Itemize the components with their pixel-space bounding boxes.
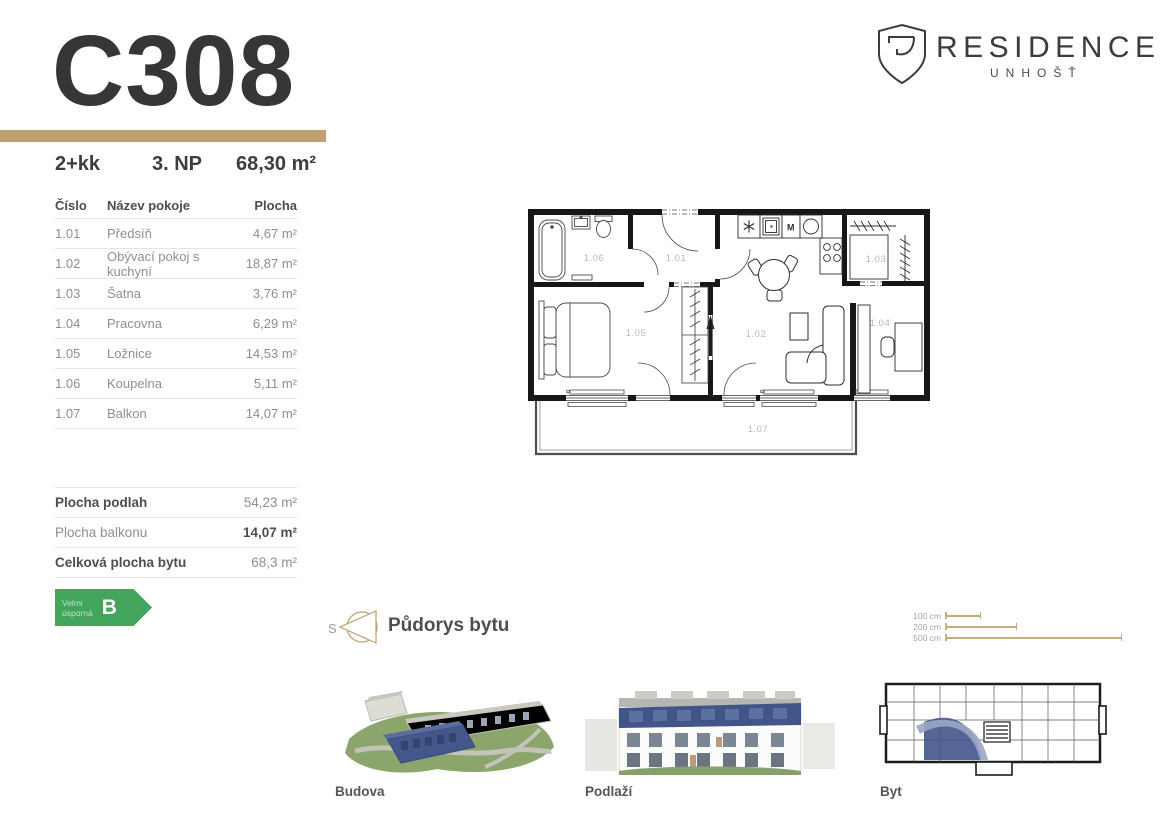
scale-row: 200 cm — [912, 621, 1127, 632]
room-name: Pracovna — [107, 316, 235, 331]
col-header-name: Název pokoje — [107, 198, 235, 213]
room-table: Číslo Název pokoje Plocha 1.01 Předsíň 4… — [55, 193, 297, 429]
table-row: 1.05 Ložnice 14,53 m² — [55, 339, 297, 369]
brand-location: UNHOŠŤ — [990, 66, 1083, 80]
sink-dot — [770, 225, 772, 227]
summary-row-balcony: Plocha balkonu 14,07 m² — [55, 518, 297, 548]
table-row: 1.01 Předsíň 4,67 m² — [55, 219, 297, 249]
room-label-105: 1.05 — [626, 328, 647, 339]
scale-line-200 — [945, 626, 1017, 628]
unit-code-title: C308 — [52, 14, 295, 129]
floor-plan: M — [524, 205, 934, 460]
room-label-104: 1.04 — [870, 318, 891, 329]
summary-value: 54,23 m² — [244, 495, 297, 510]
bath-mat — [572, 275, 592, 280]
table-row: 1.07 Balkon 14,07 m² — [55, 399, 297, 429]
table-row: 1.03 Šatna 3,76 m² — [55, 279, 297, 309]
room-number: 1.07 — [55, 406, 107, 421]
floor-number: 3. NP — [152, 153, 202, 176]
energy-class-grade: B — [102, 596, 117, 620]
summary-row-floors: Plocha podlah 54,23 m² — [55, 488, 297, 518]
unit-thumbnail-label: Byt — [880, 784, 902, 799]
room-name: Šatna — [107, 286, 235, 301]
scale-label: 200 cm — [912, 622, 945, 632]
room-number: 1.03 — [55, 286, 107, 301]
floor-thumbnail-label: Podlaží — [585, 784, 632, 799]
room-name: Balkon — [107, 406, 235, 421]
unit-thumbnail[interactable] — [878, 676, 1108, 781]
sink-icon — [572, 216, 590, 229]
area-summary: Plocha podlah 54,23 m² Plocha balkonu 14… — [55, 487, 297, 578]
room-area: 4,67 m² — [235, 226, 297, 241]
summary-row-total: Celková plocha bytu 68,3 m² — [55, 548, 297, 578]
compass-south-letter: S — [328, 621, 337, 636]
room-number: 1.05 — [55, 346, 107, 361]
brand-name: RESIDENCE — [936, 31, 1161, 65]
accent-bar — [0, 130, 326, 142]
compass-icon: S — [326, 604, 384, 652]
cooktop-icon — [820, 238, 842, 274]
toilet-icon — [595, 216, 612, 238]
room-name: Ložnice — [107, 346, 235, 361]
kitchen-mark-m: M — [787, 223, 795, 233]
room-name: Koupelna — [107, 376, 235, 391]
bathtub-icon — [539, 220, 565, 280]
room-area: 14,53 m² — [235, 346, 297, 361]
room-number: 1.04 — [55, 316, 107, 331]
dining-table-icon — [747, 254, 799, 301]
summary-value: 68,3 m² — [251, 555, 297, 570]
room-label-103: 1.03 — [866, 254, 887, 265]
building-thumbnail[interactable] — [335, 681, 560, 781]
summary-label: Celková plocha bytu — [55, 555, 251, 570]
scale-label: 500 cm — [912, 633, 945, 643]
room-number: 1.02 — [55, 256, 107, 271]
closet-rods — [850, 221, 910, 281]
room-name: Obývací pokoj s kuchyní — [107, 249, 235, 279]
building-thumbnail-label: Budova — [335, 784, 385, 799]
scale-line-100 — [945, 615, 981, 617]
layout-type: 2+kk — [55, 153, 100, 176]
energy-class-text: Velmi úsporná — [55, 598, 93, 618]
room-label-102: 1.02 — [746, 329, 767, 340]
room-area: 3,76 m² — [235, 286, 297, 301]
sofa-icon — [786, 306, 844, 385]
room-label-106: 1.06 — [584, 253, 605, 264]
room-area: 18,87 m² — [235, 256, 297, 271]
floor-thumbnail[interactable] — [585, 681, 835, 781]
kitchen-appliances — [738, 215, 822, 238]
scale-row: 500 cm — [912, 632, 1127, 643]
room-name: Předsíň — [107, 226, 235, 241]
room-area: 14,07 m² — [235, 406, 297, 421]
summary-label: Plocha podlah — [55, 495, 244, 510]
scale-row: 100 cm — [912, 610, 1127, 621]
scale-line-500 — [945, 637, 1122, 639]
room-label-107: 1.07 — [748, 424, 769, 435]
room-area: 5,11 m² — [235, 376, 297, 391]
table-header-row: Číslo Název pokoje Plocha — [55, 193, 297, 219]
summary-value: 14,07 m² — [243, 525, 297, 540]
room-label-101: 1.01 — [666, 253, 687, 264]
scale-label: 100 cm — [912, 611, 945, 621]
plan-caption: Půdorys bytu — [388, 615, 509, 637]
apartment-datasheet: C308 2+kk 3. NP 68,30 m² RESIDENCE UNHOŠ… — [0, 0, 1172, 826]
wardrobe-strip — [682, 287, 708, 383]
col-header-area: Plocha — [235, 198, 297, 213]
room-number: 1.01 — [55, 226, 107, 241]
col-header-number: Číslo — [55, 198, 107, 213]
summary-label: Plocha balkonu — [55, 525, 243, 540]
room-number: 1.06 — [55, 376, 107, 391]
room-area: 6,29 m² — [235, 316, 297, 331]
bed-icon — [539, 301, 610, 379]
total-area: 68,30 m² — [236, 153, 316, 176]
table-row: 1.06 Koupelna 5,11 m² — [55, 369, 297, 399]
table-row: 1.02 Obývací pokoj s kuchyní 18,87 m² — [55, 249, 297, 279]
balcony-outline — [536, 401, 856, 454]
energy-class-badge: Velmi úsporná B — [55, 589, 152, 626]
scale-bars: 100 cm 200 cm 500 cm — [912, 610, 1127, 643]
table-row: 1.04 Pracovna 6,29 m² — [55, 309, 297, 339]
